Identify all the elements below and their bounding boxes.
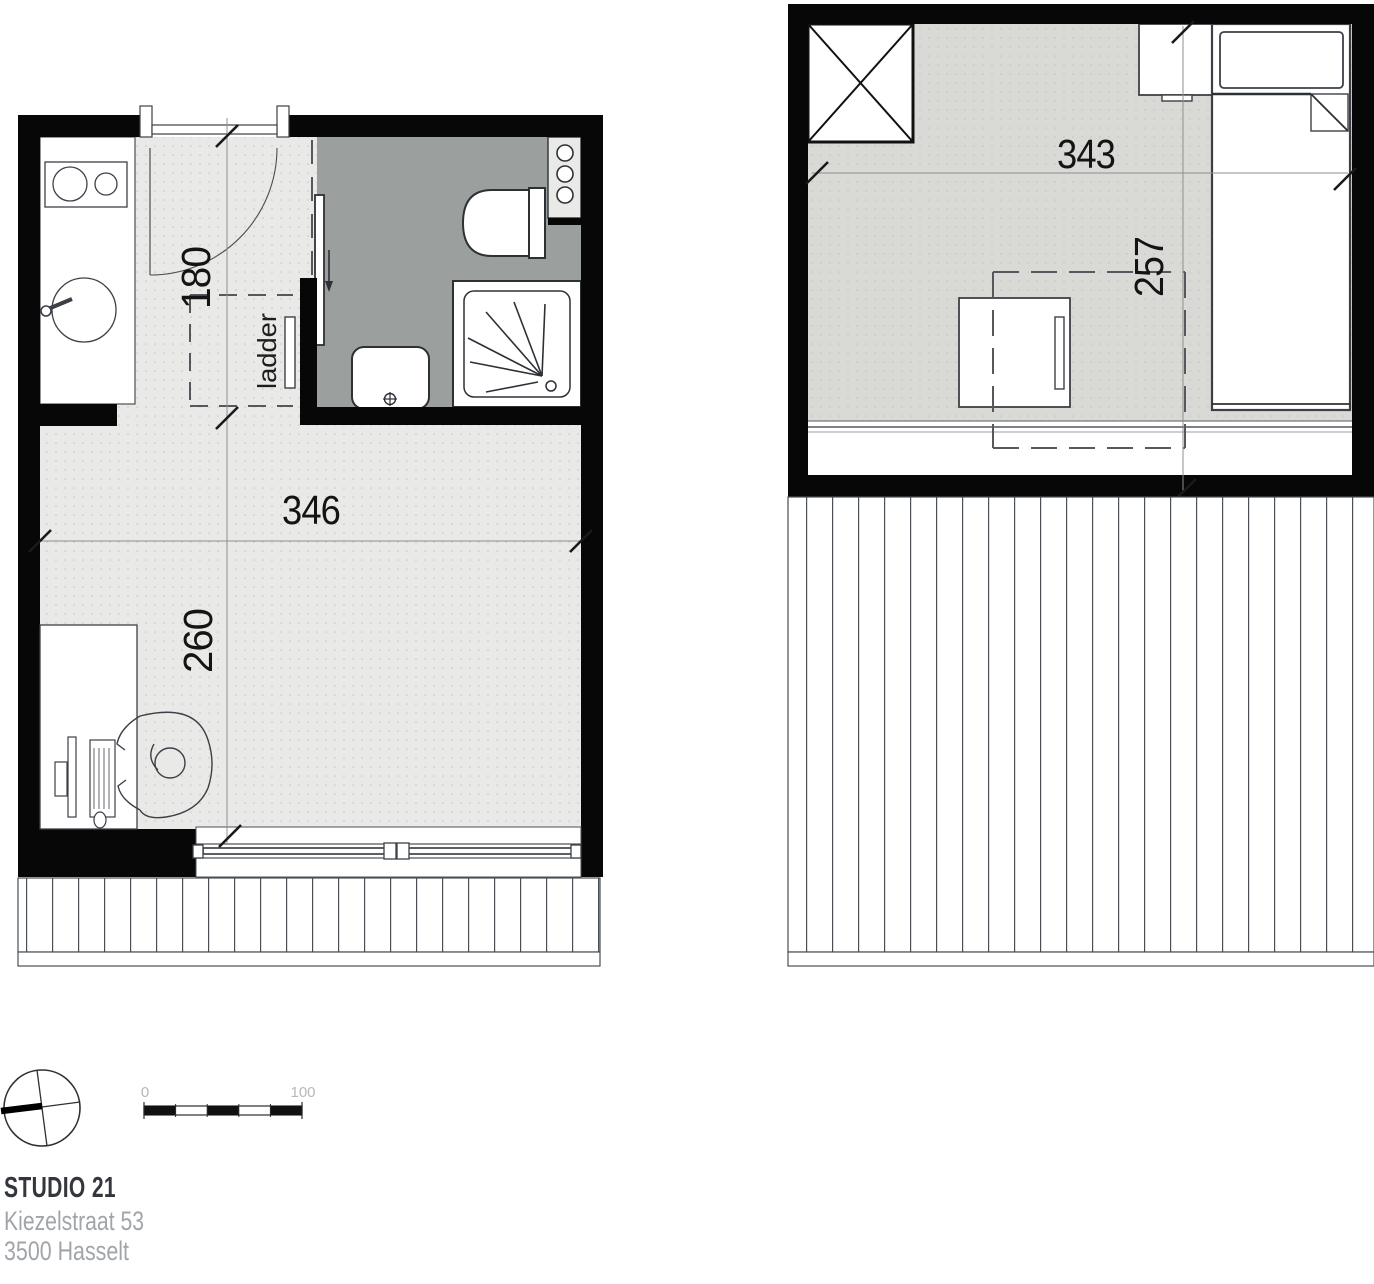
dimension-upper-depth: 257 — [1126, 237, 1172, 297]
cooktop — [45, 162, 127, 207]
title-block: STUDIO 21 Kiezelstraat 53 3500 Hasselt — [4, 1172, 144, 1266]
glass-panel-right — [400, 848, 578, 854]
monitor-stand — [55, 762, 67, 796]
desk — [40, 625, 137, 829]
deck-rim — [788, 952, 1374, 966]
kitchen-counter — [40, 137, 135, 404]
pipe-icon — [557, 187, 573, 203]
wall-bathroom-bottom — [300, 407, 603, 425]
compass-rose — [1, 1070, 80, 1146]
wall-kitchen-stub — [18, 404, 117, 426]
kitchen-sink — [52, 278, 116, 342]
ground-floor-plan: ladder — [18, 106, 603, 966]
wall-bathroom-left — [300, 278, 317, 409]
dimension-width: 346 — [282, 487, 340, 533]
bathroom — [312, 137, 581, 409]
skylight-void — [808, 24, 913, 142]
ladder-label: ladder — [252, 313, 282, 389]
scale-bar: 0 100 — [141, 1084, 316, 1119]
nightstand — [1139, 24, 1212, 101]
dresser-handle — [1055, 317, 1064, 389]
wall-left — [18, 115, 40, 877]
wall-top-right — [287, 115, 603, 137]
door-end-cap-right — [571, 845, 581, 858]
wall-niche-stub — [548, 218, 581, 225]
wall-left — [788, 4, 808, 497]
north-arrow-icon — [1, 1106, 42, 1111]
deck-rim — [18, 952, 600, 966]
pipe-icon — [557, 145, 573, 161]
wall-right — [581, 115, 603, 877]
dimension-entry-depth: 180 — [173, 247, 219, 309]
door-end-cap-left — [193, 845, 203, 858]
door-jamb-right — [277, 106, 289, 137]
wall-top — [788, 4, 1374, 24]
pillow — [1220, 32, 1343, 88]
faucet-base — [41, 306, 51, 316]
dimension-upper-width: 343 — [1057, 131, 1115, 177]
bed — [1212, 24, 1350, 410]
washbasin — [352, 347, 429, 409]
nightstand-handle — [1162, 95, 1192, 101]
door-jamb-left — [140, 106, 152, 137]
dimension-living-depth: 260 — [175, 609, 221, 673]
sliding-glass-door — [193, 827, 581, 877]
door-handle-right — [397, 843, 409, 859]
ground-floor-deck — [18, 878, 600, 966]
scale-end-label: 100 — [290, 1084, 315, 1101]
door-handle-left — [384, 843, 396, 859]
upper-floor-deck — [788, 497, 1374, 966]
glass-panel-left — [203, 848, 385, 854]
toilet — [463, 188, 545, 258]
upper-floor-plan: 343 257 — [788, 4, 1374, 966]
door-leaf-closed — [152, 125, 277, 134]
monitor — [68, 737, 76, 817]
wall-bottom-left — [18, 829, 196, 877]
floor-plan-sheet: ladder — [0, 0, 1374, 1284]
address-line-2: 3500 Hasselt — [4, 1236, 129, 1266]
address-line-1: Kiezelstraat 53 — [4, 1206, 144, 1236]
wall-right — [1352, 4, 1374, 497]
scale-start-label: 0 — [141, 1084, 149, 1101]
shower — [453, 281, 581, 407]
mouse — [94, 812, 106, 828]
wall-bottom — [788, 475, 1374, 497]
dresser — [959, 298, 1070, 407]
project-title: STUDIO 21 — [4, 1172, 116, 1204]
deck-planks — [18, 878, 600, 952]
ladder — [285, 317, 295, 388]
pipe-icon — [557, 166, 573, 182]
deck-planks — [788, 497, 1374, 952]
